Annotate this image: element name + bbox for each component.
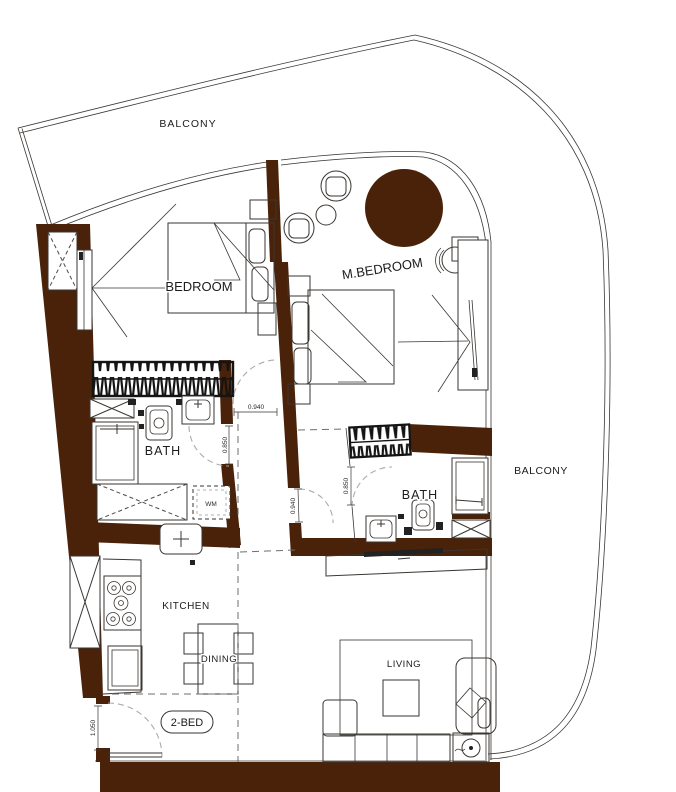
bed xyxy=(168,223,274,313)
entry-door-leaf xyxy=(108,753,162,757)
shaft-small xyxy=(90,399,134,418)
dim-master-bedroom-door: 0.940 xyxy=(290,497,297,514)
bath-1: WM xyxy=(90,396,230,520)
window-bedroom xyxy=(77,250,92,330)
armchair xyxy=(321,171,351,201)
room-boundary xyxy=(298,429,346,430)
floor-plan-svg: WM xyxy=(0,0,676,792)
bedroom xyxy=(92,200,276,396)
bath-label: BATH xyxy=(145,444,181,458)
washing-machine-label: WM xyxy=(205,501,217,508)
bedroom-door-arc xyxy=(233,360,277,404)
master-bath-door-arc xyxy=(352,467,392,507)
window-master-bedroom xyxy=(458,240,488,390)
wall-entry-top xyxy=(96,696,110,704)
stove xyxy=(104,576,141,630)
washing-machine: WM xyxy=(193,486,230,519)
shaft-left-top xyxy=(48,232,77,290)
dim-entry-door: 1.050 xyxy=(90,719,97,736)
kitchen-sink xyxy=(160,524,202,565)
unit-badge: 2-BED xyxy=(161,711,213,733)
vanity xyxy=(452,458,488,514)
balcony-right-label: BALCONY xyxy=(514,465,568,477)
kitchen-label: KITCHEN xyxy=(162,601,209,612)
wall-mbath-top xyxy=(408,424,492,456)
armchair xyxy=(284,213,314,243)
base-cabinet xyxy=(108,646,142,690)
master-bed xyxy=(292,290,394,384)
nightstand xyxy=(288,276,310,296)
chair xyxy=(184,633,203,654)
dashed-boundaries xyxy=(112,412,296,762)
dining-label: DINING xyxy=(201,654,237,665)
chaise-chair xyxy=(456,658,496,734)
toilet-master xyxy=(412,500,443,530)
rug xyxy=(340,640,472,735)
chair xyxy=(234,633,253,654)
sink-master xyxy=(366,514,412,542)
balcony-top-label: BALCONY xyxy=(159,118,216,130)
coffee-table xyxy=(383,680,419,716)
side-table-round xyxy=(316,205,336,225)
counter xyxy=(103,559,141,694)
floor-plan-page: WM xyxy=(0,0,676,792)
chair xyxy=(184,663,203,684)
wall-bottom xyxy=(100,762,500,792)
shaft-mbath xyxy=(452,520,490,538)
toilet xyxy=(138,406,172,440)
nightstand xyxy=(258,303,276,335)
bedroom-label: BEDROOM xyxy=(165,279,232,294)
master-bedroom-label: M.BEDROOM xyxy=(341,255,424,283)
wardrobe xyxy=(93,362,233,396)
living-label: LIVING xyxy=(387,659,421,670)
dim-bath-door: 0.850 xyxy=(222,436,229,453)
master-bedroom-door-arc xyxy=(299,489,333,523)
floor-lamp xyxy=(453,733,489,762)
bathtub xyxy=(92,422,138,484)
column-circle xyxy=(365,169,443,247)
balcony-railing xyxy=(18,35,610,761)
shaft-left-bottom xyxy=(70,556,100,648)
dim-bedroom-door: 0.940 xyxy=(248,404,265,411)
chair xyxy=(234,663,253,684)
unit-badge-label: 2-BED xyxy=(171,717,203,729)
living xyxy=(323,548,496,762)
sofa xyxy=(323,700,450,762)
wardrobe-master xyxy=(349,424,410,457)
entry-door-arc xyxy=(108,703,162,757)
master-bath-label: BATH xyxy=(402,488,438,502)
dim-master-bath-door: 0.850 xyxy=(343,477,350,494)
shaft-dashed xyxy=(97,484,187,520)
